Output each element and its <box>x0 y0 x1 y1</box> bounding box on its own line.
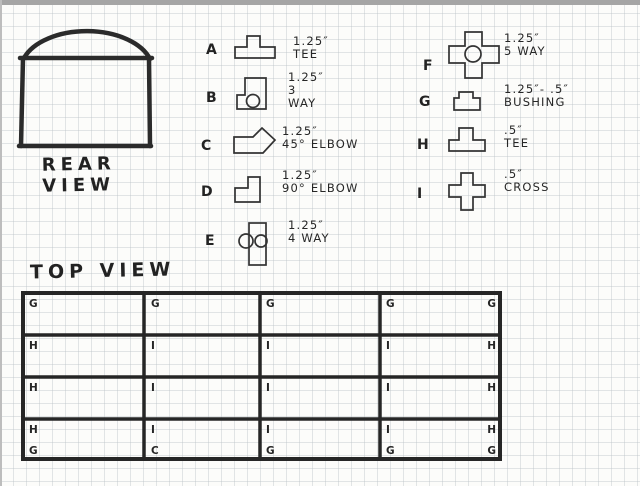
four-way-icon <box>236 221 270 267</box>
legend-desc-b-line3: WAY <box>288 97 324 110</box>
legend-desc-b: 1.25″ 3 WAY <box>288 71 324 110</box>
fitting-marker: I <box>151 382 155 394</box>
fitting-marker: I <box>266 340 270 352</box>
legend-desc-d-line2: 90° ELBOW <box>282 182 359 195</box>
legend-desc-i: .5″ CROSS <box>504 168 550 194</box>
fitting-marker: I <box>386 340 390 352</box>
legend-key-g: G <box>419 94 431 110</box>
three-way-icon <box>235 76 273 112</box>
fitting-marker: I <box>386 424 390 436</box>
tee-large-icon <box>232 34 278 61</box>
fitting-marker: I <box>266 424 270 436</box>
legend-key-b: B <box>206 90 217 106</box>
legend-desc-h: .5″ TEE <box>504 124 529 150</box>
right-wall-line <box>149 59 150 146</box>
fitting-marker: I <box>386 382 390 394</box>
legend-desc-i-line2: CROSS <box>504 181 550 194</box>
elbow-90-icon <box>233 175 263 204</box>
legend-desc-f-line2: 5 WAY <box>504 45 546 58</box>
legend-desc-d: 1.25″ 90° ELBOW <box>282 169 359 195</box>
rear-view-drawing <box>10 10 162 152</box>
fitting-marker: G <box>29 445 38 457</box>
legend-key-e: E <box>205 233 215 249</box>
bushing-icon <box>452 90 482 112</box>
legend-key-i: I <box>417 186 422 202</box>
fitting-marker: G <box>151 298 160 310</box>
fitting-marker: I <box>151 424 155 436</box>
fitting-marker: G <box>29 298 38 310</box>
fitting-marker: I <box>151 340 155 352</box>
legend-desc-g-line2: BUSHING <box>504 96 569 109</box>
photo-edge-left <box>0 0 2 486</box>
top-view-grid: G G G G G H I I I H H I I I H H I I I H … <box>18 288 508 466</box>
legend-desc-h-line2: TEE <box>504 137 529 150</box>
fitting-marker: H <box>487 382 496 394</box>
fitting-marker: H <box>29 340 38 352</box>
cross-icon <box>447 171 487 213</box>
legend-key-d: D <box>201 184 213 200</box>
rear-view-label-line1: REAR <box>42 153 116 176</box>
rear-view-label: REAR VIEW <box>42 153 117 197</box>
fitting-marker: H <box>29 424 38 436</box>
five-way-icon <box>447 30 501 80</box>
legend-key-a: A <box>206 42 217 58</box>
fitting-marker: H <box>29 382 38 394</box>
rear-view-label-line2: VIEW <box>42 174 116 197</box>
top-view-label: TOP VIEW <box>30 259 176 283</box>
fitting-marker: G <box>386 445 395 457</box>
legend-desc-a: 1.25″ TEE <box>293 35 329 61</box>
legend-key-f: F <box>423 58 433 74</box>
legend-key-c: C <box>201 138 211 154</box>
legend-desc-a-line2: TEE <box>293 48 329 61</box>
elbow-45-icon <box>232 127 278 157</box>
fitting-marker: G <box>266 298 275 310</box>
legend-desc-g: 1.25″- .5″ BUSHING <box>504 83 569 109</box>
legend-desc-c: 1.25″ 45° ELBOW <box>282 125 359 151</box>
legend-desc-e-line2: 4 WAY <box>288 232 330 245</box>
fitting-marker: G <box>487 445 496 457</box>
fitting-marker: G <box>386 298 395 310</box>
fitting-marker: C <box>151 445 159 457</box>
fitting-marker: I <box>266 382 270 394</box>
legend-key-h: H <box>417 137 429 153</box>
photo-edge-top <box>0 0 640 5</box>
legend-desc-f: 1.25″ 5 WAY <box>504 32 546 58</box>
fitting-marker: G <box>487 298 496 310</box>
left-wall-line <box>21 58 23 146</box>
scanned-plan-page: { "rear_view": { "label": ["REAR", "VIEW… <box>0 0 640 486</box>
fitting-marker: H <box>487 340 496 352</box>
legend-desc-c-line2: 45° ELBOW <box>282 138 359 151</box>
fitting-marker: G <box>266 445 275 457</box>
fitting-marker: H <box>487 424 496 436</box>
legend-desc-e: 1.25″ 4 WAY <box>288 219 330 245</box>
tee-small-icon <box>447 126 487 154</box>
dome-arc <box>24 31 150 59</box>
